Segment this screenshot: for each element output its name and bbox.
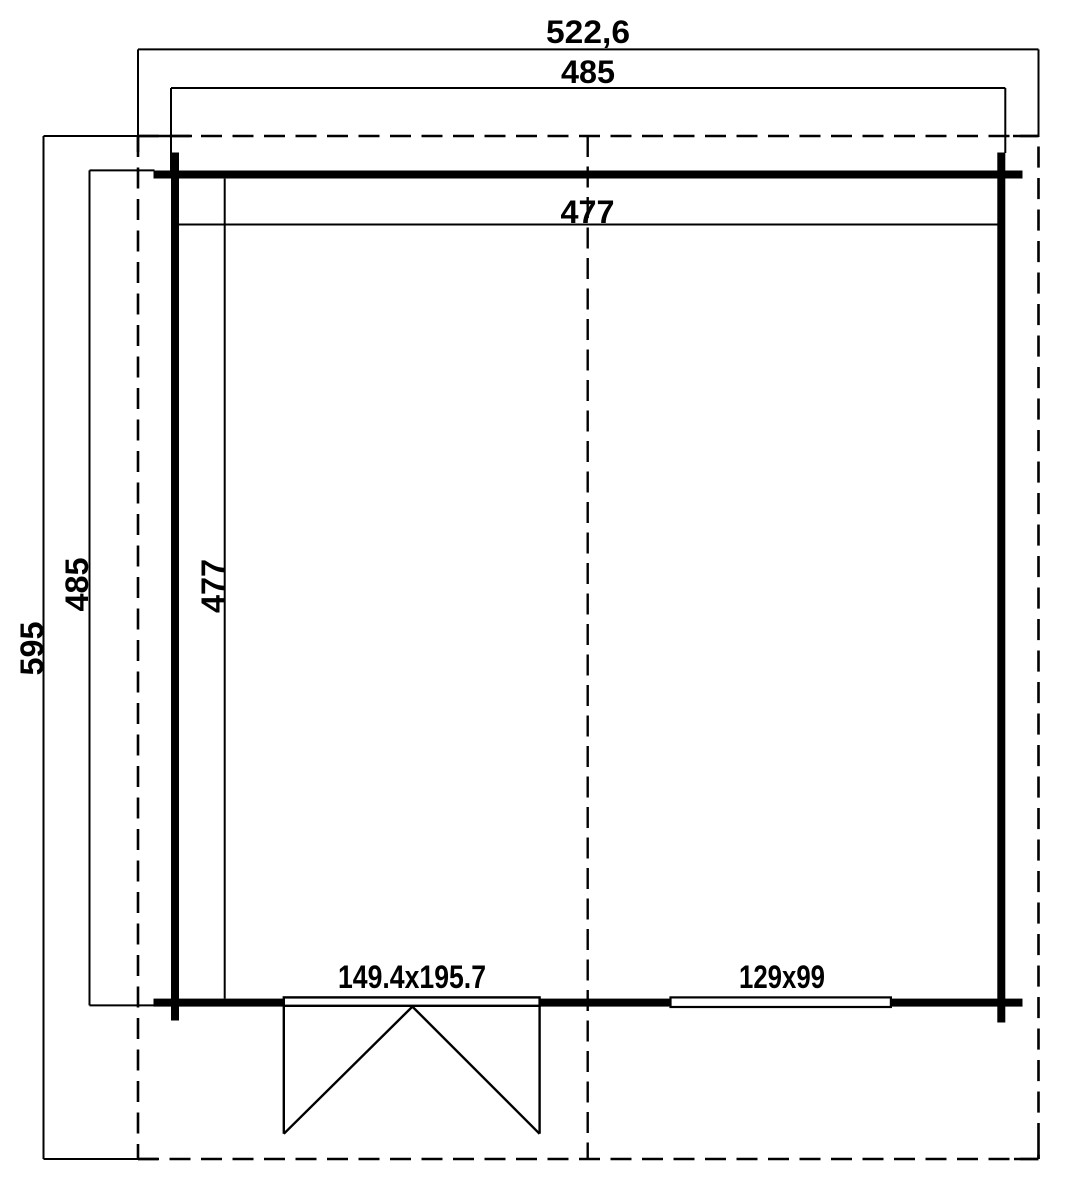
svg-text:595: 595: [14, 622, 50, 676]
svg-text:477: 477: [195, 559, 231, 613]
svg-text:129x99: 129x99: [739, 959, 825, 995]
svg-text:477: 477: [561, 194, 615, 230]
svg-text:522,6: 522,6: [546, 14, 630, 50]
svg-text:149.4x195.7: 149.4x195.7: [338, 959, 486, 995]
svg-text:485: 485: [561, 54, 615, 90]
svg-text:485: 485: [59, 558, 95, 612]
